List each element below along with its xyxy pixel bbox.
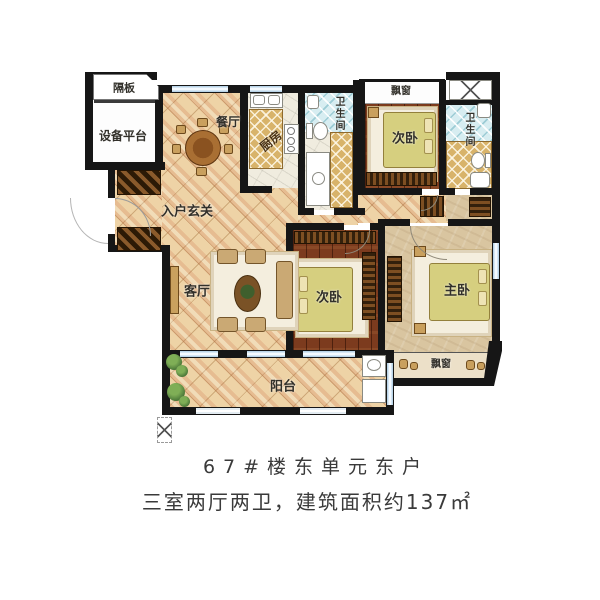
side-cabinet: [170, 266, 179, 314]
label-balcony: 阳台: [270, 381, 296, 394]
label-living-room: 客厅: [184, 286, 210, 299]
window: [180, 351, 218, 357]
wardrobe: [366, 172, 437, 186]
wall: [286, 223, 344, 230]
burner: [287, 137, 295, 145]
toilet-bowl: [471, 152, 485, 169]
burner: [287, 127, 295, 135]
wall: [359, 79, 445, 82]
column-legend: [157, 417, 172, 443]
window: [493, 243, 499, 279]
label-partition: 隔板: [113, 83, 135, 94]
wall: [446, 100, 500, 105]
window: [250, 86, 282, 92]
wall: [162, 245, 170, 355]
deco-stone: [410, 362, 418, 370]
dining-table: [185, 130, 221, 166]
pillow: [299, 276, 308, 292]
pillow: [424, 139, 433, 154]
window: [196, 408, 240, 414]
wardrobe: [469, 197, 491, 217]
armchair: [245, 249, 266, 264]
window: [300, 408, 346, 414]
armchair: [217, 317, 238, 332]
caption-specs: 三室两厅两卫，建筑面积约137㎡: [0, 486, 600, 515]
label-bedroom-middle: 次卧: [316, 292, 342, 305]
wall: [439, 188, 455, 195]
chair: [197, 118, 208, 127]
coffee-table: [234, 275, 261, 312]
window: [303, 351, 355, 357]
wall: [439, 100, 446, 195]
label-equipment-platform: 设备平台: [99, 130, 147, 142]
shaft-box: [449, 80, 492, 100]
floor-plan-image: 隔板 设备平台 餐厅 厨房 卫生间 飘窗 次卧 卫生间 入户玄关 客厅 次卧 主…: [0, 0, 600, 600]
wall: [85, 72, 93, 170]
wall: [298, 85, 305, 210]
bathroom1-floor: [330, 132, 353, 208]
door-arc: [70, 198, 108, 244]
deco-stone: [466, 360, 475, 370]
wall: [240, 186, 272, 193]
burner: [287, 146, 295, 152]
wall: [94, 100, 155, 103]
sofa: [276, 261, 293, 319]
wall: [358, 188, 422, 195]
label-bay-window-top: 飘窗: [391, 87, 411, 97]
chair: [176, 125, 186, 134]
chair: [172, 144, 181, 154]
label-dining: 餐厅: [216, 116, 240, 128]
wardrobe: [387, 256, 402, 322]
armchair: [217, 249, 238, 264]
shower-drain: [312, 172, 325, 185]
sink-basin: [253, 95, 265, 105]
deco-stone: [477, 362, 485, 370]
label-master-bedroom: 主卧: [444, 285, 470, 298]
window: [247, 351, 285, 357]
pillow: [424, 118, 433, 133]
pillow: [299, 298, 308, 314]
bathroom-sink: [307, 95, 319, 109]
nightstand: [414, 323, 426, 334]
deco-stone: [399, 359, 408, 369]
shoe-cabinet: [117, 170, 161, 195]
wall: [492, 72, 500, 202]
wall: [298, 208, 314, 215]
washer-box: [362, 379, 386, 403]
plant: [179, 396, 190, 407]
wall: [394, 378, 490, 386]
toilet-tank: [306, 123, 313, 139]
wall: [353, 80, 365, 195]
toilet-tank: [485, 153, 491, 168]
wall: [470, 188, 500, 195]
wall: [334, 208, 365, 215]
nightstand: [368, 107, 379, 118]
wall: [378, 219, 385, 357]
plant: [176, 365, 188, 377]
caption-unit: 67#楼东单元东户: [0, 452, 600, 479]
wall: [108, 165, 115, 198]
label-bay-window-bottom: 飘窗: [431, 360, 451, 370]
chair: [224, 144, 233, 154]
wall: [385, 219, 410, 226]
balcony-basin: [367, 359, 381, 371]
label-entry-hall: 入户玄关: [161, 206, 213, 219]
shower-tray: [470, 172, 490, 188]
bathroom-sink: [477, 103, 491, 118]
sink-basin: [268, 95, 280, 105]
armchair: [245, 317, 266, 332]
chair: [196, 167, 207, 176]
label-bathroom-1: 卫生间: [333, 96, 343, 132]
wall: [240, 85, 248, 188]
window: [172, 86, 228, 92]
label-bedroom-top: 次卧: [392, 133, 418, 146]
label-bathroom-2: 卫生间: [463, 112, 473, 148]
wardrobe: [362, 252, 376, 320]
toilet-bowl: [313, 122, 328, 140]
pillow: [478, 291, 487, 306]
wall: [85, 162, 165, 170]
pillow: [478, 269, 487, 284]
window: [387, 363, 393, 405]
